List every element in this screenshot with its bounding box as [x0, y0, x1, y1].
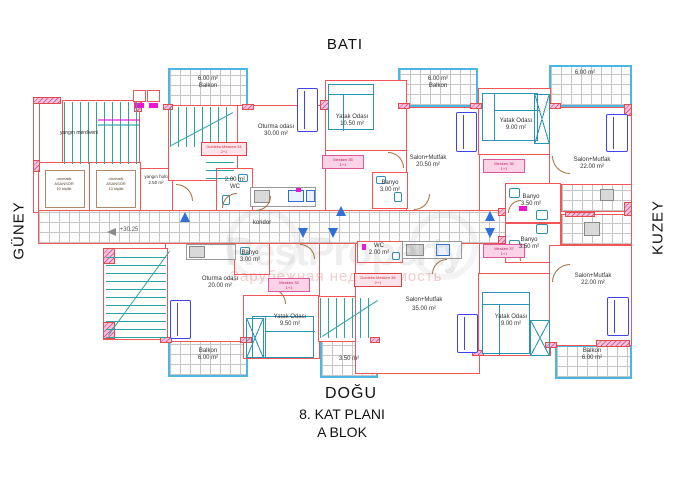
sofa — [170, 300, 191, 339]
room-label-yatak-odasi-1050: Yatak Odası10.50 m² — [316, 114, 388, 128]
compass-east: DOĞU — [316, 385, 386, 403]
fire-stairs-label: yangın merdiveni — [44, 130, 114, 136]
balcony-label: 6.00 m² — [552, 70, 618, 77]
unit-tag: Dubleks Mesken 382+1 — [354, 273, 402, 287]
column — [498, 208, 506, 216]
shaft-box — [133, 90, 146, 102]
room-label-oturma-odasi-30: Oturma odası30.00 m² — [238, 124, 314, 138]
column — [596, 340, 630, 347]
balcony-label: 3.50 m² — [322, 356, 376, 363]
corridor — [38, 210, 506, 244]
level-mark: +30.25 — [114, 227, 144, 234]
sink-icon — [600, 189, 614, 201]
column — [624, 202, 632, 216]
direction-arrow-down — [485, 228, 495, 238]
unit-tag: Mesken 361+1 — [483, 159, 525, 173]
floor-plan-drawing: +30.25 RestProperty ® Зарубежная недвижи… — [0, 0, 678, 480]
room-label-banyo-350-upper: Banyo3.50 m² — [506, 194, 556, 208]
shaft-box — [147, 90, 160, 102]
direction-arrow-down — [328, 228, 338, 238]
room-label-yatak-odasi-950: Yatak Odası9.50 m² — [254, 314, 326, 328]
room-label-wc-top: 2.00 m²WC — [217, 177, 253, 191]
sink-icon — [306, 190, 315, 202]
plan-title-block: A BLOK — [290, 424, 394, 440]
direction-arrow-down — [298, 228, 308, 238]
compass-south: GÜNEY — [11, 199, 28, 263]
corridor-label: koridor — [240, 220, 284, 227]
column — [242, 104, 254, 110]
right-service-strip-top — [561, 184, 632, 212]
bath-core-divider — [505, 222, 561, 224]
column — [565, 212, 595, 217]
door-arc — [176, 184, 193, 201]
balcony-label: Balkon6.00 m² — [557, 348, 627, 362]
column — [549, 103, 561, 109]
column — [470, 103, 482, 109]
room-label-banyo-300-bottom: Banyo3.00 m² — [232, 250, 268, 264]
balcony-label: Balkon6.00 m² — [170, 348, 246, 362]
elevator-label: otomatikASANSÖR10 kişilik — [92, 176, 140, 191]
plan-title-floor: 8. KAT PLANI — [290, 406, 394, 422]
room-label-wc-bottom: WC2.00 m² — [360, 243, 398, 257]
column — [33, 160, 40, 172]
stair-text-line — [98, 124, 140, 126]
sofa — [607, 297, 629, 336]
sink-icon — [406, 244, 424, 256]
direction-arrow-up — [336, 206, 346, 216]
balcony-label: 6.00 m²Balkon — [170, 76, 246, 90]
unit-tag: Mesken 351+1 — [322, 155, 364, 169]
washbasin-icon — [536, 210, 548, 220]
bed — [482, 93, 538, 141]
room-label-banyo-300-top: Banyo3.00 m² — [372, 180, 408, 194]
washbasin-icon — [536, 224, 548, 234]
column — [33, 97, 61, 104]
balcony-label: 6.00 m²Balkon — [400, 76, 476, 90]
room-label-banyo-350-lower: Banyo3.50 m² — [504, 237, 554, 251]
sink-icon — [584, 222, 600, 236]
shaft-marker — [149, 103, 158, 108]
room-label-yatak-odasi-900-bottom: Yatak Odası9.00 m² — [475, 314, 547, 328]
sofa — [456, 112, 477, 152]
direction-arrow-up — [485, 211, 495, 221]
room-label-yatak-odasi-900-top: Yatak Odası9.00 m² — [480, 118, 552, 132]
compass-west: BATI — [320, 36, 370, 53]
fridge-icon — [189, 246, 205, 258]
column — [398, 103, 410, 109]
unit-tag: Dubleks Mesken 342+1 — [201, 142, 247, 156]
sofa — [606, 114, 628, 152]
direction-arrow-up — [180, 212, 190, 222]
compass-north: KUZEY — [650, 196, 667, 260]
fire-hall-label: yangın holü2.50 m² — [138, 174, 174, 185]
unit-tag: Mesken 331+1 — [268, 278, 310, 292]
room-label-salon-mutfak-2200-top: Salon+Mutfak22.00 m² — [556, 157, 628, 171]
room-label-salon-mutfak-3500: Salon+Mutfak35.00 m² — [388, 296, 460, 314]
room-label-salon-mutfak-2050: Salon+Mutfak20.50 m² — [392, 155, 464, 169]
marker — [296, 188, 301, 192]
room-label-salon-mutfak-2200-bottom: Salon+Mutfak22.00 m² — [557, 273, 629, 287]
stove-icon — [436, 244, 450, 256]
elevator-label: otomatikASANSÖR10 kişilik — [40, 176, 88, 191]
stair-text-line — [98, 119, 140, 121]
room-label-oturma-odasi-20: Oturma odası20.00 m² — [182, 276, 258, 290]
